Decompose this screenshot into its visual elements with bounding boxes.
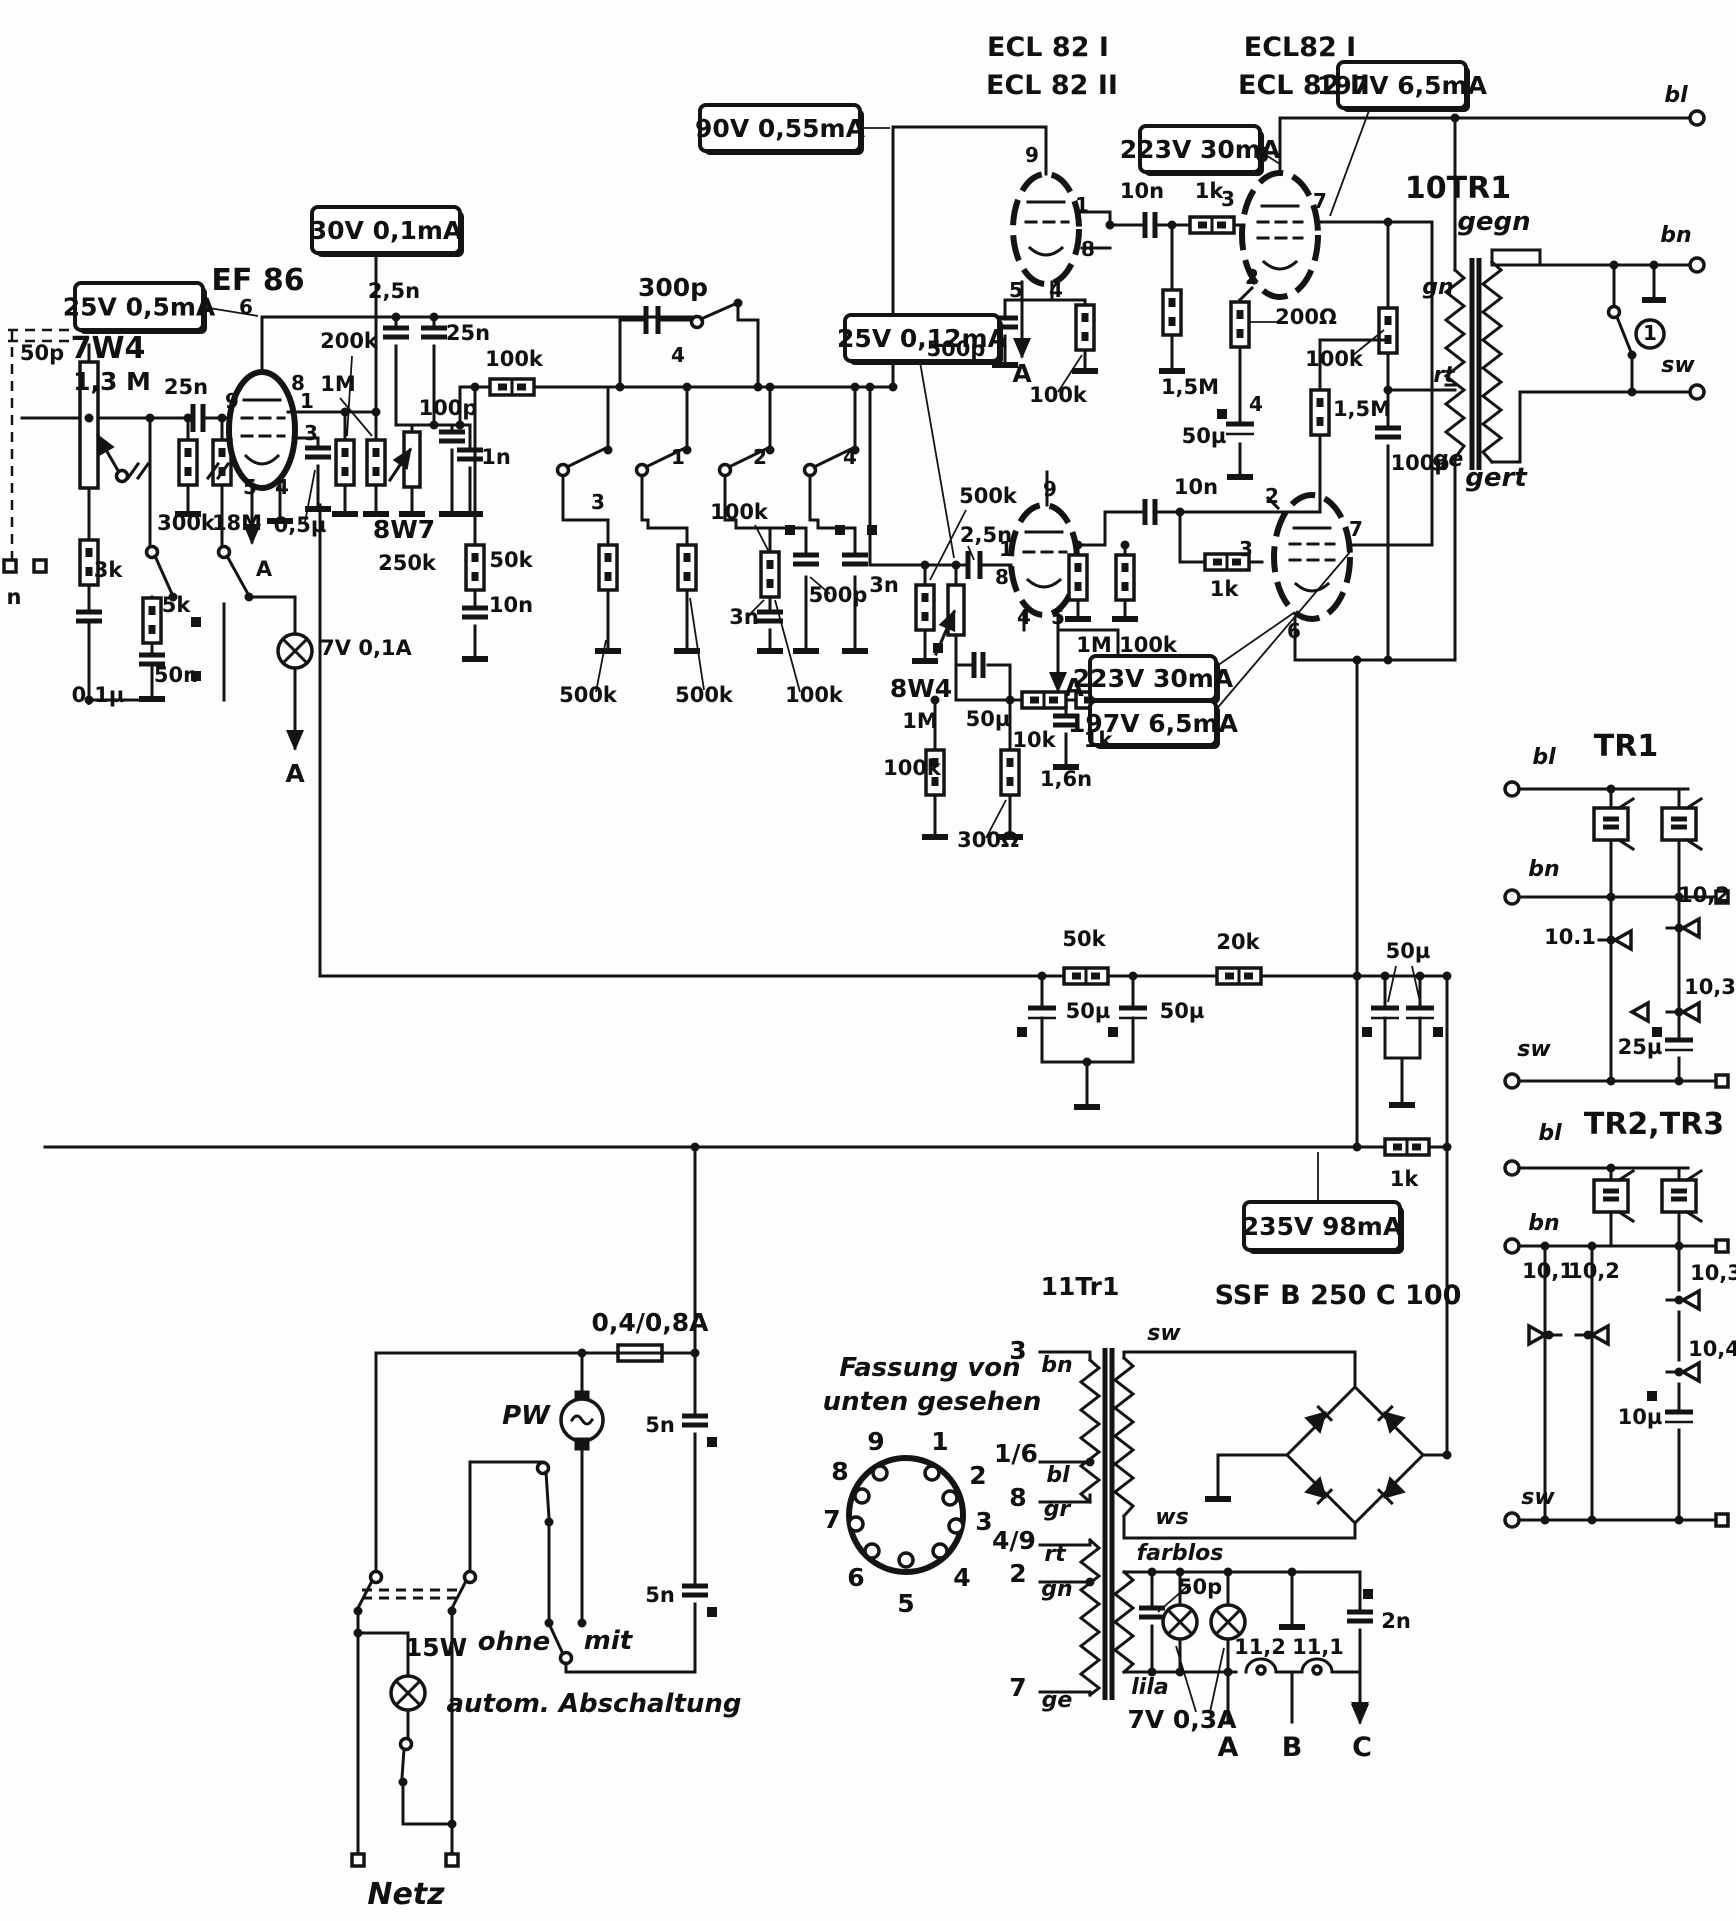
label-pot-7w4-value: 1,3 M	[73, 367, 151, 396]
label-switch-ohne: ohne	[478, 1627, 551, 1657]
label-socket-pin6: 6	[847, 1563, 864, 1592]
label-switch-circle-1: 1	[1643, 321, 1657, 345]
label-socket-pin1: 1	[931, 1427, 948, 1456]
label-res-5k: 5k	[162, 593, 192, 617]
label-choke-111: 11,1	[1292, 1635, 1344, 1659]
label-res-500k-e: 500k	[959, 484, 1018, 508]
label-cap-50n: 50n	[154, 663, 198, 687]
label-socket-pin5: 5	[897, 1589, 914, 1618]
label-term-bn-tr23: bn	[1528, 1211, 1559, 1236]
label-socket-pin8: 8	[831, 1457, 848, 1486]
label-cap-1n: 1n	[481, 445, 511, 469]
label-pen1-pin3: 3	[1221, 187, 1235, 211]
callout-235v98-text: 235V 98mA	[1242, 1212, 1403, 1241]
callout-90v055-text: 90V 0,55mA	[695, 114, 866, 143]
label-speaker-group-tr23: TR2,TR3	[1584, 1107, 1724, 1142]
label-tri2-pin9: 9	[1043, 477, 1057, 501]
label-arrow-a-ef86: A	[256, 557, 273, 581]
label-wire-ws: ws	[1155, 1505, 1188, 1530]
label-socket-pin3: 3	[975, 1507, 992, 1536]
label-wire-bl2: bl	[1046, 1463, 1070, 1488]
label-tri1-pin9: 9	[1025, 143, 1039, 167]
label-res-100k-f: 100k	[1029, 383, 1088, 407]
label-out-b: B	[1282, 1732, 1303, 1763]
label-res-500k-d: 500k	[675, 683, 734, 707]
label-cap-50p-in: 50p	[20, 341, 64, 365]
label-res-300k: 300k	[157, 511, 216, 535]
label-wire-gegn: gegn	[1457, 207, 1530, 237]
label-cap-500p-c: 500p	[927, 337, 986, 361]
label-wire-ge: ge	[1433, 447, 1464, 472]
label-res-300ohm: 300Ω	[957, 828, 1019, 852]
callout-25v05-text: 25V 0,5mA	[63, 293, 216, 322]
label-wire-gert: gert	[1465, 463, 1528, 493]
label-tap-2: 2	[1009, 1559, 1026, 1588]
schematic-page: 25V 0,5mA30V 0,1mA90V 0,55mA25V 0,12mA22…	[0, 0, 1736, 1921]
label-tri2-pin1: 1	[999, 537, 1013, 561]
label-tube-ef86: EF 86	[211, 263, 304, 298]
label-pen1-pin4cap: 4	[1249, 392, 1263, 416]
label-tap-8: 8	[1009, 1483, 1026, 1512]
label-out-c: C	[1352, 1732, 1372, 1763]
label-tube-ecl82-2b: ECL 82 II	[1238, 70, 1370, 101]
label-res-50k-a: 50k	[489, 548, 533, 572]
label-res-1k-a: 1k	[1084, 728, 1114, 752]
label-res-1m-ef: 1M	[320, 372, 356, 396]
label-spk-101: 10.1	[1544, 925, 1596, 949]
label-term-netz: Netz	[367, 1877, 445, 1912]
label-res-1k-b: 1k	[1195, 179, 1225, 203]
label-term-bl-tr1: bl	[1532, 745, 1556, 770]
label-ef86-pin1: 1	[300, 389, 314, 413]
label-cap-01u: 0,1µ	[72, 683, 125, 707]
ecl82-stage	[858, 108, 1704, 712]
label-arrow-a-tri2: A	[1064, 673, 1084, 702]
label-pen2-pin3: 3	[1239, 537, 1253, 561]
label-spk-102b: 10,2	[1568, 1259, 1620, 1283]
label-socket-pin7: 7	[823, 1505, 840, 1534]
label-note-abschaltung: autom. Abschaltung	[446, 1689, 741, 1719]
label-res-100k-d: 100k	[785, 683, 844, 707]
label-tri2-pin8: 8	[995, 565, 1009, 589]
label-res-100k-g: 100k	[1305, 347, 1364, 371]
callout-30v01-text: 30V 0,1mA	[310, 216, 463, 245]
label-res-10k: 10k	[1012, 728, 1056, 752]
label-spk-102: 10,2	[1678, 883, 1730, 907]
label-cap-50u-d: 50µ	[1160, 999, 1205, 1023]
label-tap-7: 7	[1009, 1673, 1026, 1702]
label-cap-5n-a: 5n	[645, 1413, 675, 1437]
tube-socket-view	[849, 1458, 963, 1572]
schematic-drawing: 25V 0,5mA30V 0,1mA90V 0,55mA25V 0,12mA22…	[0, 0, 1736, 1921]
label-term-bl-r: bl	[1664, 83, 1688, 108]
label-switch-mit: mit	[584, 1626, 634, 1656]
label-tri1-pin5: 5	[1009, 278, 1023, 302]
label-wire-ge2: ge	[1042, 1688, 1073, 1713]
label-term-sw-r: sw	[1661, 353, 1695, 378]
label-tri2-pin4: 4	[1017, 605, 1031, 629]
label-tri1-pin4: 4	[1049, 278, 1063, 302]
label-pot-7w4: 7W4	[71, 331, 146, 366]
label-socket-caption-1: Fassung von	[839, 1353, 1020, 1383]
label-pot-8w7: 8W7	[373, 515, 435, 544]
mains-section	[352, 1143, 717, 1867]
label-pot-8w4-value: 1M	[902, 709, 938, 733]
label-tap-16: 1/6	[994, 1439, 1038, 1468]
label-cap-500p-b: 500p	[809, 583, 868, 607]
label-res-100k-a: 100k	[485, 347, 544, 371]
label-spk-103: 10,3	[1684, 975, 1736, 999]
label-arrow-a-lamp: A	[285, 759, 305, 788]
label-switch-2: 2	[753, 445, 767, 469]
label-res-100k-e: 100k	[883, 756, 942, 780]
label-wire-gn2: gn	[1041, 1577, 1072, 1602]
label-term-bl-tr23: bl	[1538, 1121, 1562, 1146]
label-wire-sw2: sw	[1147, 1321, 1181, 1346]
label-cap-2n: 2n	[1381, 1609, 1411, 1633]
label-wire-lila: lila	[1131, 1675, 1168, 1700]
label-tube-ecl82-2a: ECL82 I	[1244, 32, 1356, 63]
label-cap-50u-c: 50µ	[1066, 999, 1111, 1023]
label-wire-gn: gn	[1422, 275, 1453, 300]
label-socket-caption-2: unten gesehen	[823, 1387, 1042, 1417]
label-cap-10n-c: 10n	[1174, 475, 1218, 499]
label-cap-05u: 0,5µ	[274, 513, 327, 537]
label-res-18m: 18M	[212, 511, 262, 535]
label-switch-3: 3	[591, 490, 605, 514]
label-res-20k: 20k	[1216, 930, 1260, 954]
label-res-3k: 3k	[94, 558, 124, 582]
label-switch-4a: 4	[671, 343, 685, 367]
label-cap-1-6n: 1,6n	[1040, 767, 1092, 791]
label-cap-50u-b: 50µ	[1182, 424, 1227, 448]
label-cap-25u: 25µ	[1618, 1035, 1663, 1059]
label-ef86-pin6: 6	[239, 295, 253, 319]
label-pot-8w4: 8W4	[890, 674, 952, 703]
label-pen1-pin2: 2	[1245, 265, 1259, 289]
label-res-1k-c: 1k	[1210, 577, 1240, 601]
label-wire-rt: rt	[1433, 363, 1456, 388]
label-cap-50p-b: 50p	[1178, 1575, 1222, 1599]
label-fragment-n: n	[7, 585, 22, 609]
label-motor-pw: PW	[502, 1401, 551, 1431]
label-term-bn-tr1: bn	[1528, 857, 1559, 882]
label-tri1-pin8: 8	[1081, 237, 1095, 261]
label-cap-2-5n: 2,5n	[368, 279, 420, 303]
label-heater-7v03a: 7V 0,3A	[1127, 1705, 1237, 1734]
label-pen2-pin2: 2	[1265, 484, 1279, 508]
label-cap-10n-b: 10n	[1120, 179, 1164, 203]
label-speaker-group-tr1: TR1	[1594, 729, 1658, 764]
label-tube-ecl82-1a: ECL 82 I	[987, 32, 1109, 63]
measurement-callouts: 25V 0,5mA30V 0,1mA90V 0,55mA25V 0,12mA22…	[63, 62, 1488, 1254]
label-wire-gr2: gr	[1044, 1497, 1072, 1522]
label-lamp-7v01a: 7V 0,1A	[320, 636, 412, 660]
label-cap-10u: 10µ	[1618, 1405, 1663, 1429]
label-res-100k-c: 100k	[710, 500, 769, 524]
label-term-bn-r: bn	[1660, 223, 1691, 248]
label-res-200k: 200k	[320, 329, 379, 353]
label-rectifier-type: SSF B 250 C 100	[1215, 1280, 1462, 1311]
label-res-1-5m-b: 1,5M	[1333, 397, 1391, 421]
label-spk-104b: 10,4	[1688, 1337, 1736, 1361]
label-ef86-pin3: 3	[304, 421, 318, 445]
label-pen1-pin7: 7	[1313, 189, 1327, 213]
label-lamp-15w: 15W	[405, 1633, 467, 1662]
label-cap-3n-a: 3n	[729, 605, 759, 629]
label-socket-pin4: 4	[953, 1563, 970, 1592]
label-res-1k-d: 1k	[1390, 1167, 1420, 1191]
label-ef86-pin5: 5	[243, 475, 257, 499]
label-out-a: A	[1218, 1732, 1239, 1763]
label-pen1-pin6: 6	[1255, 143, 1269, 167]
label-socket-pin2: 2	[969, 1461, 986, 1490]
label-res-100k-h: 100k	[1119, 633, 1178, 657]
label-res-1-5m-a: 1,5M	[1161, 375, 1219, 399]
label-switch-4b: 4	[843, 445, 857, 469]
callout-223v30b-text: 223V 30mA	[1073, 664, 1234, 693]
label-tri2-pin5: 5	[1051, 605, 1065, 629]
label-transformer-10tr1: 10TR1	[1405, 171, 1511, 206]
label-cap-25n-2: 25n	[446, 321, 490, 345]
label-tube-ecl82-1b: ECL 82 II	[986, 70, 1118, 101]
label-res-50k-b: 50k	[1062, 927, 1106, 951]
label-spk-101b: 10,1	[1522, 1259, 1574, 1283]
label-cap-50u-a: 50µ	[966, 707, 1011, 731]
label-wire-farblos: farblos	[1137, 1541, 1224, 1566]
label-term-sw-tr23: sw	[1521, 1485, 1555, 1510]
label-res-1m-c: 1M	[1076, 633, 1112, 657]
label-socket-pin9: 9	[867, 1427, 884, 1456]
label-res-500k-c: 500k	[559, 683, 618, 707]
label-choke-112: 11,2	[1234, 1635, 1286, 1659]
feedback-row	[45, 660, 1452, 1455]
label-wire-rt2: rt	[1044, 1542, 1067, 1567]
label-res-200ohm: 200Ω	[1275, 305, 1337, 329]
label-cap-3n-b: 3n	[869, 573, 899, 597]
label-cap-300p: 300p	[638, 273, 708, 302]
label-pen2-pin7: 7	[1349, 517, 1363, 541]
label-spk-103b: 10,3	[1690, 1261, 1736, 1285]
label-tap-49: 4/9	[992, 1526, 1036, 1555]
label-term-sw-tr1: sw	[1517, 1037, 1551, 1062]
label-switch-1: 1	[671, 445, 685, 469]
label-fuse-04-08a: 0,4/0,8A	[591, 1308, 709, 1337]
label-ef86-pin9: 9	[225, 389, 239, 413]
label-cap-10n-a: 10n	[489, 593, 533, 617]
label-cap-25n-in: 25n	[164, 375, 208, 399]
label-pot-8w7-value: 250k	[378, 551, 437, 575]
label-transformer-11tr1: 11Tr1	[1041, 1272, 1120, 1301]
label-tri1-pin1: 1	[1075, 193, 1089, 217]
label-ef86-pin4: 4	[275, 475, 289, 499]
label-wire-bn2: bn	[1041, 1353, 1072, 1378]
label-cap-50u-e: 50µ	[1386, 939, 1431, 963]
label-cap-100p-a: 100p	[419, 396, 478, 420]
label-pen2-pin6: 6	[1287, 619, 1301, 643]
label-cap-5n-b: 5n	[645, 1583, 675, 1607]
